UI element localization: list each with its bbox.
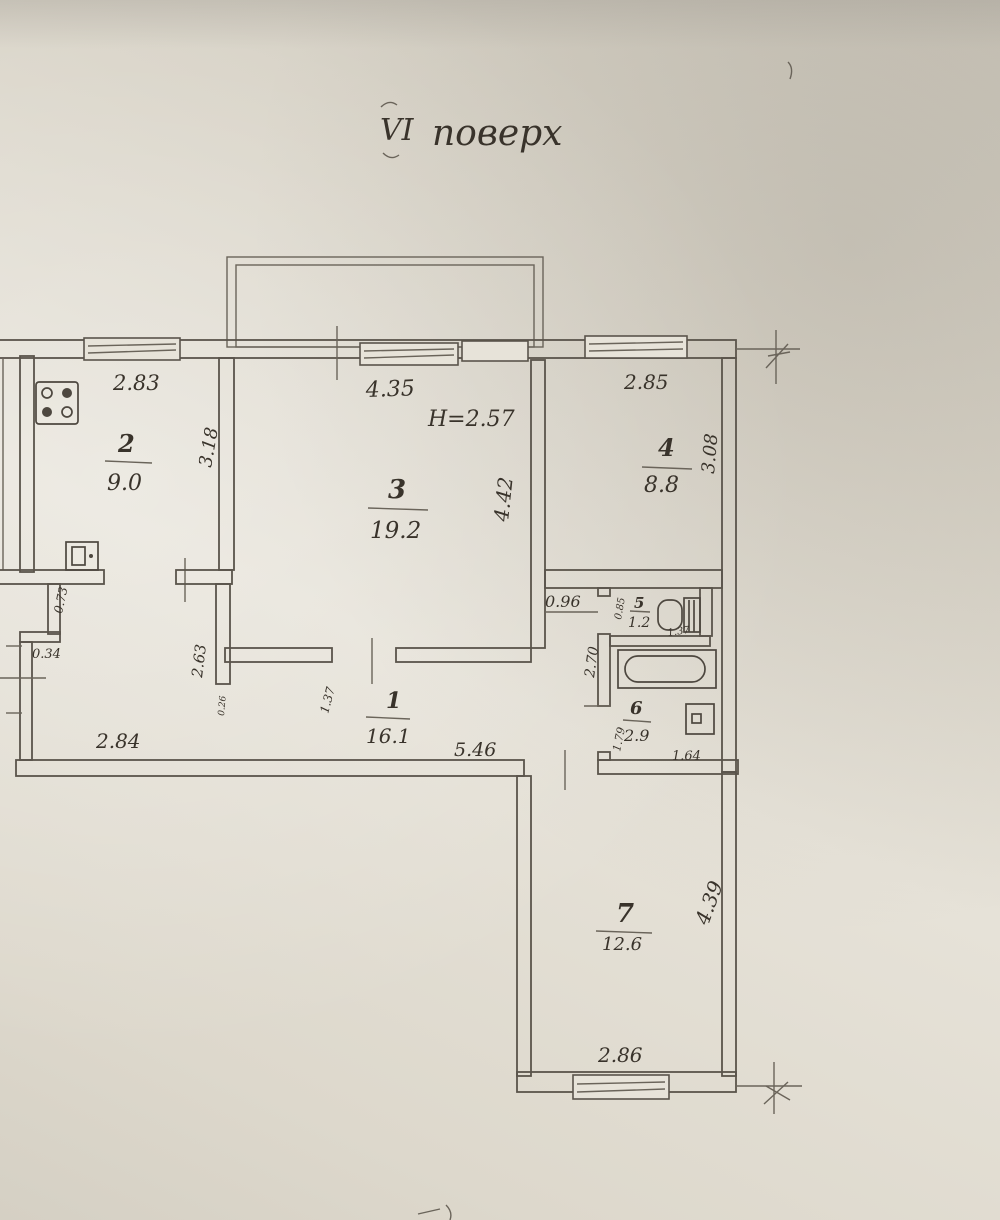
balcony-outer [227, 257, 543, 347]
stray-pen-mark [788, 62, 792, 79]
room3-right-wall [531, 360, 545, 648]
stove-icon [36, 382, 78, 424]
dim-room1-pass-width: 1.37 [317, 685, 338, 715]
room2-underline [105, 461, 152, 463]
room6-label: 6 2.9 [623, 698, 651, 745]
room6-underline [623, 720, 651, 722]
room7-number: 7 [616, 899, 634, 929]
room4-bottom-wall [545, 570, 722, 588]
room3-underline [368, 508, 428, 510]
dim-mark-top-right [766, 330, 790, 384]
room1-number: 1 [386, 688, 401, 714]
dim-room7-width: 2.86 [597, 1043, 643, 1067]
alcove-top-wall-left [0, 570, 104, 584]
room7-left-wall [517, 776, 531, 1076]
bathtub-icon [618, 650, 716, 688]
room1-label: 1 16.1 [366, 688, 411, 748]
room6-number: 6 [630, 698, 643, 719]
room4-area: 8.8 [644, 473, 679, 498]
room3-label: 3 19.2 H=2.57 [368, 407, 515, 544]
dim-mark-bottom-right [764, 1062, 790, 1114]
balcony-inner [236, 265, 534, 347]
floor-title: VI поверх [380, 102, 562, 157]
dim-room3-depth: 4.42 [489, 476, 518, 524]
room5-label: 5 1.2 [628, 594, 650, 631]
kitchen-window-icon [84, 338, 180, 360]
dim-niche-width: 0.96 [545, 592, 581, 611]
dim-room4-width: 2.85 [623, 370, 669, 394]
room3-area: 19.2 [370, 518, 421, 544]
floorplan-drawing: VI поверх [0, 0, 1000, 1220]
room4-window-icon [585, 336, 687, 358]
dim-alcove-width: 2.84 [95, 729, 141, 753]
tilde-above-icon [381, 102, 397, 107]
room2-number: 2 [117, 429, 135, 458]
room7-label: 7 12.6 [596, 899, 652, 955]
dim-room5-width: 0.85 [613, 597, 628, 621]
room2-area: 9.0 [107, 471, 142, 496]
kitchen-sink-icon [66, 542, 98, 570]
dim-room2-width: 2.83 [112, 371, 160, 395]
right-outer-wall [722, 358, 736, 772]
scanned-floorplan-page: VI поверх [0, 0, 1000, 1220]
balcony-outline [227, 257, 543, 347]
room3-window-icon [360, 343, 458, 365]
room7-underline [596, 931, 652, 933]
washbasin-icon [686, 704, 714, 734]
kitchen-left-wall [20, 356, 34, 572]
room3-bottom-wall-left [225, 648, 332, 662]
room4-underline [642, 467, 692, 469]
room3-bottom-wall-right [396, 648, 531, 662]
room5-underline [630, 611, 650, 612]
tilde-below-icon [383, 153, 399, 158]
room4-label: 4 8.8 [642, 433, 692, 498]
dim-room6-inner-depth: 1.79 [610, 726, 628, 753]
ceiling-height-note: H=2.57 [427, 407, 515, 432]
dim-room3-width: 4.35 [364, 376, 415, 403]
room3-number: 3 [388, 475, 406, 505]
wc-right-wall [700, 588, 712, 636]
floor-roman-numeral: VI [380, 113, 415, 148]
room5-number: 5 [634, 594, 644, 612]
room7-area: 12.6 [602, 934, 642, 955]
bath-left-wall-upper [598, 634, 610, 706]
wc-bath-divider-wall [610, 636, 710, 646]
dim-room6-width: 1.64 [672, 749, 701, 764]
dim-wall-thickness: 0.26 [217, 695, 229, 716]
hall-bottom-wall [16, 760, 524, 776]
wc-left-wall-stub [598, 588, 610, 596]
dim-alcove-depth: 2.63 [188, 643, 210, 679]
room7-right-wall [722, 772, 736, 1076]
room2-label: 2 9.0 [105, 429, 152, 496]
dim-room4-depth: 3.08 [698, 433, 722, 475]
room1-underline [366, 717, 410, 719]
dim-alcove-niche-depth: 0.73 [51, 585, 70, 614]
balcony-door-icon [462, 341, 528, 361]
dim-alcove-step: 0.34 [32, 647, 61, 662]
room5-area: 1.2 [628, 615, 650, 631]
room4-number: 4 [658, 433, 675, 462]
floor-word: поверх [432, 113, 562, 154]
dim-room6-outer-depth: 2.70 [582, 645, 602, 679]
bath-bottom-wall [598, 760, 738, 774]
room7-window-icon [573, 1075, 669, 1099]
dim-room1-length: 5.46 [454, 739, 496, 761]
alcove-left-wall [20, 642, 32, 760]
kitchen-room3-wall [219, 358, 234, 570]
room1-area: 16.1 [366, 724, 411, 748]
cut-off-text-marks [418, 1205, 451, 1220]
alcove-partition-wall [216, 584, 230, 684]
bath-left-wall-lower [598, 752, 610, 760]
